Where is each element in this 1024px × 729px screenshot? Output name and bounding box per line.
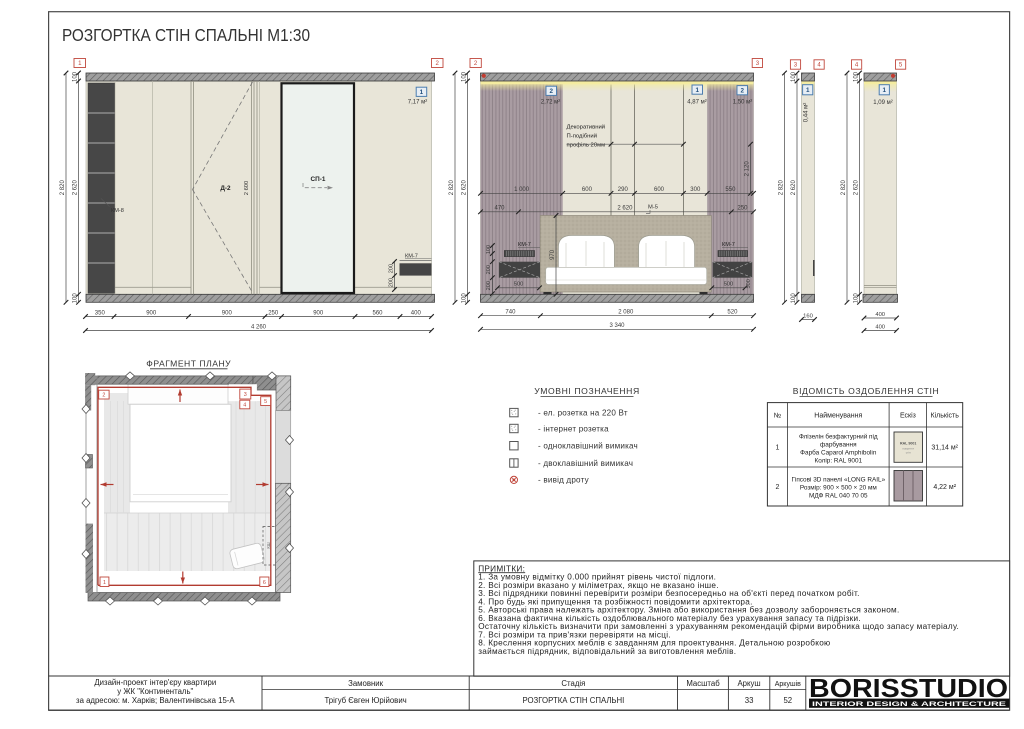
svg-text:100: 100 [791, 71, 797, 82]
svg-text:СП-1: СП-1 [311, 176, 326, 183]
svg-text:6: 6 [263, 580, 266, 586]
svg-text:1,09 м²: 1,09 м² [873, 100, 892, 106]
svg-text:200: 200 [388, 278, 394, 287]
svg-text:- інтернет розетка: - інтернет розетка [538, 424, 609, 433]
svg-text:3: 3 [244, 392, 247, 398]
svg-text:2 620: 2 620 [72, 180, 78, 196]
svg-text:РОЗГОРТКА СТІН СПАЛЬНІ М1:30: РОЗГОРТКА СТІН СПАЛЬНІ М1:30 [62, 25, 310, 45]
svg-text:900: 900 [222, 310, 233, 316]
svg-text:займається підрядник, відповід: займається підрядник, відповідальний за … [478, 647, 736, 656]
svg-text:100: 100 [853, 293, 859, 304]
svg-text:2 620: 2 620 [461, 180, 467, 196]
svg-text:1: 1 [420, 89, 424, 96]
svg-text:560: 560 [372, 310, 383, 316]
svg-text:470: 470 [494, 206, 505, 212]
svg-text:4,22 м²: 4,22 м² [933, 484, 956, 491]
svg-text:стін: стін [906, 451, 911, 455]
svg-text:100: 100 [486, 245, 492, 254]
svg-text:3 340: 3 340 [609, 323, 625, 329]
svg-text:2 120: 2 120 [744, 161, 750, 177]
svg-text:МДФ RAL 040 70 05: МДФ RAL 040 70 05 [809, 492, 868, 499]
svg-text:Колір: RAL 9001: Колір: RAL 9001 [815, 456, 863, 464]
svg-text:2 620: 2 620 [617, 206, 633, 212]
svg-text:1: 1 [103, 580, 106, 586]
svg-text:КМ-7: КМ-7 [405, 254, 418, 260]
svg-text:- одноклавішний вимикач: - одноклавішний вимикач [538, 442, 638, 451]
svg-text:250: 250 [268, 310, 279, 316]
svg-text:1: 1 [776, 445, 780, 452]
svg-text:1: 1 [806, 87, 810, 94]
svg-text:4: 4 [243, 403, 246, 409]
svg-text:100: 100 [72, 293, 78, 304]
svg-text:4 260: 4 260 [251, 324, 267, 330]
svg-text:Д-2: Д-2 [220, 185, 231, 192]
svg-text:31,14 м²: 31,14 м² [931, 445, 958, 452]
svg-text:Найменування: Найменування [814, 411, 862, 419]
svg-text:INTERIOR DESIGN & ARCHITECTURE: INTERIOR DESIGN & ARCHITECTURE [812, 701, 1006, 708]
svg-text:РОЗГОРТКА СТІН СПАЛЬНІ: РОЗГОРТКА СТІН СПАЛЬНІ [522, 696, 624, 705]
svg-text:Аркушів: Аркушів [775, 680, 801, 688]
svg-text:1: 1 [883, 87, 887, 94]
svg-text:Трігуб Євген Юрійович: Трігуб Євген Юрійович [324, 696, 406, 705]
svg-text:1,50 м²: 1,50 м² [733, 100, 752, 106]
svg-text:2: 2 [436, 60, 440, 67]
svg-text:Розмір: 900 × 500 × 20 мм: Розмір: 900 × 500 × 20 мм [800, 483, 877, 491]
svg-text:400: 400 [875, 324, 885, 330]
svg-text:100: 100 [72, 71, 78, 82]
svg-text:М-5: М-5 [648, 205, 658, 211]
svg-text:500: 500 [724, 282, 734, 288]
svg-text:100: 100 [791, 293, 797, 304]
svg-text:250: 250 [737, 206, 748, 212]
svg-text:Декоративний: Декоративний [567, 124, 606, 131]
svg-text:0,44 м²: 0,44 м² [804, 103, 810, 122]
svg-text:2: 2 [740, 88, 744, 95]
svg-text:2 820: 2 820 [60, 180, 66, 196]
svg-text:200: 200 [486, 265, 492, 274]
svg-text:Замовник: Замовник [348, 679, 384, 688]
svg-text:500: 500 [746, 279, 752, 288]
svg-text:2 620: 2 620 [791, 180, 797, 196]
svg-text:200: 200 [486, 281, 492, 290]
svg-text:100: 100 [853, 71, 859, 82]
svg-text:Флізелін безфактурний під: Флізелін безфактурний під [799, 432, 878, 440]
svg-text:400: 400 [875, 312, 885, 318]
svg-text:2 820: 2 820 [841, 180, 847, 196]
svg-text:33: 33 [745, 696, 754, 705]
svg-text:290: 290 [618, 187, 629, 193]
svg-text:100: 100 [461, 71, 467, 82]
svg-text:2 820: 2 820 [449, 180, 455, 196]
svg-text:Гіпсові 3D панелі «LONG RAIL»: Гіпсові 3D панелі «LONG RAIL» [791, 475, 885, 483]
svg-text:1: 1 [695, 87, 699, 94]
svg-text:2 600: 2 600 [244, 181, 250, 196]
svg-text:фарбування: фарбування [820, 440, 857, 448]
svg-text:П-подібний: П-подібний [567, 133, 598, 140]
svg-text:3: 3 [756, 60, 760, 67]
svg-text:740: 740 [505, 310, 516, 316]
svg-text:RAL 9001: RAL 9001 [900, 442, 916, 446]
svg-text:Масштаб: Масштаб [686, 679, 720, 688]
svg-text:Аркуш: Аркуш [737, 679, 760, 688]
svg-text:2: 2 [776, 484, 780, 491]
svg-text:970: 970 [550, 249, 556, 260]
svg-text:- вивід дроту: - вивід дроту [538, 476, 590, 485]
svg-text:500: 500 [514, 282, 524, 288]
svg-text:4,87 м²: 4,87 м² [687, 100, 706, 106]
svg-text:160: 160 [803, 313, 813, 319]
svg-text:52: 52 [783, 696, 792, 705]
svg-text:профіль 20мм: профіль 20мм [567, 143, 606, 149]
svg-text:600: 600 [582, 187, 593, 193]
svg-text:за адресою: м. Харків; Валенти: за адресою: м. Харків; Валентинівська 15… [76, 696, 235, 705]
svg-text:Дизайн-проект інтер'єру кварти: Дизайн-проект інтер'єру квартири [94, 678, 216, 687]
svg-text:1 000: 1 000 [514, 187, 530, 193]
svg-text:350: 350 [95, 310, 106, 316]
svg-text:100: 100 [461, 293, 467, 304]
svg-text:2 620: 2 620 [853, 180, 859, 196]
svg-text:Фарба Caparol Amphibolin: Фарба Caparol Amphibolin [800, 448, 877, 456]
svg-text:Стадія: Стадія [561, 679, 585, 688]
svg-text:2 080: 2 080 [618, 310, 634, 316]
svg-text:200: 200 [388, 264, 394, 273]
svg-text:2 820: 2 820 [778, 180, 784, 196]
svg-text:900: 900 [313, 310, 324, 316]
svg-text:у ЖК "Континенталь": у ЖК "Континенталь" [117, 687, 193, 696]
svg-text:2: 2 [549, 88, 553, 95]
svg-text:- двоклавішний вимикач: - двоклавішний вимикач [538, 459, 633, 468]
svg-text:5: 5 [264, 399, 267, 405]
svg-text:400: 400 [411, 310, 422, 316]
svg-text:300: 300 [690, 187, 701, 193]
svg-text:550: 550 [725, 187, 736, 193]
svg-text:ВІДОМІСТЬ ОЗДОБЛЕННЯ СТІН: ВІДОМІСТЬ ОЗДОБЛЕННЯ СТІН [793, 386, 940, 396]
svg-text:Ескіз: Ескіз [900, 411, 916, 419]
svg-text:Кількість: Кількість [931, 411, 960, 419]
svg-text:- ел. розетка на 220 Вт: - ел. розетка на 220 Вт [538, 408, 628, 417]
svg-text:2,72 м²: 2,72 м² [541, 100, 560, 106]
svg-text:520: 520 [727, 310, 738, 316]
svg-text:ФРАГМЕНТ ПЛАНУ: ФРАГМЕНТ ПЛАНУ [146, 359, 231, 369]
svg-text:900: 900 [146, 310, 157, 316]
svg-text:600: 600 [654, 187, 665, 193]
svg-text:УМОВНІ ПОЗНАЧЕННЯ: УМОВНІ ПОЗНАЧЕННЯ [534, 386, 640, 396]
svg-text:2: 2 [102, 393, 105, 399]
svg-text:№: № [774, 412, 782, 419]
svg-text:7,17 м²: 7,17 м² [408, 100, 427, 106]
svg-text:КМ-8: КМ-8 [111, 208, 124, 214]
svg-text:BORISSTUDIO: BORISSTUDIO [809, 673, 1008, 703]
